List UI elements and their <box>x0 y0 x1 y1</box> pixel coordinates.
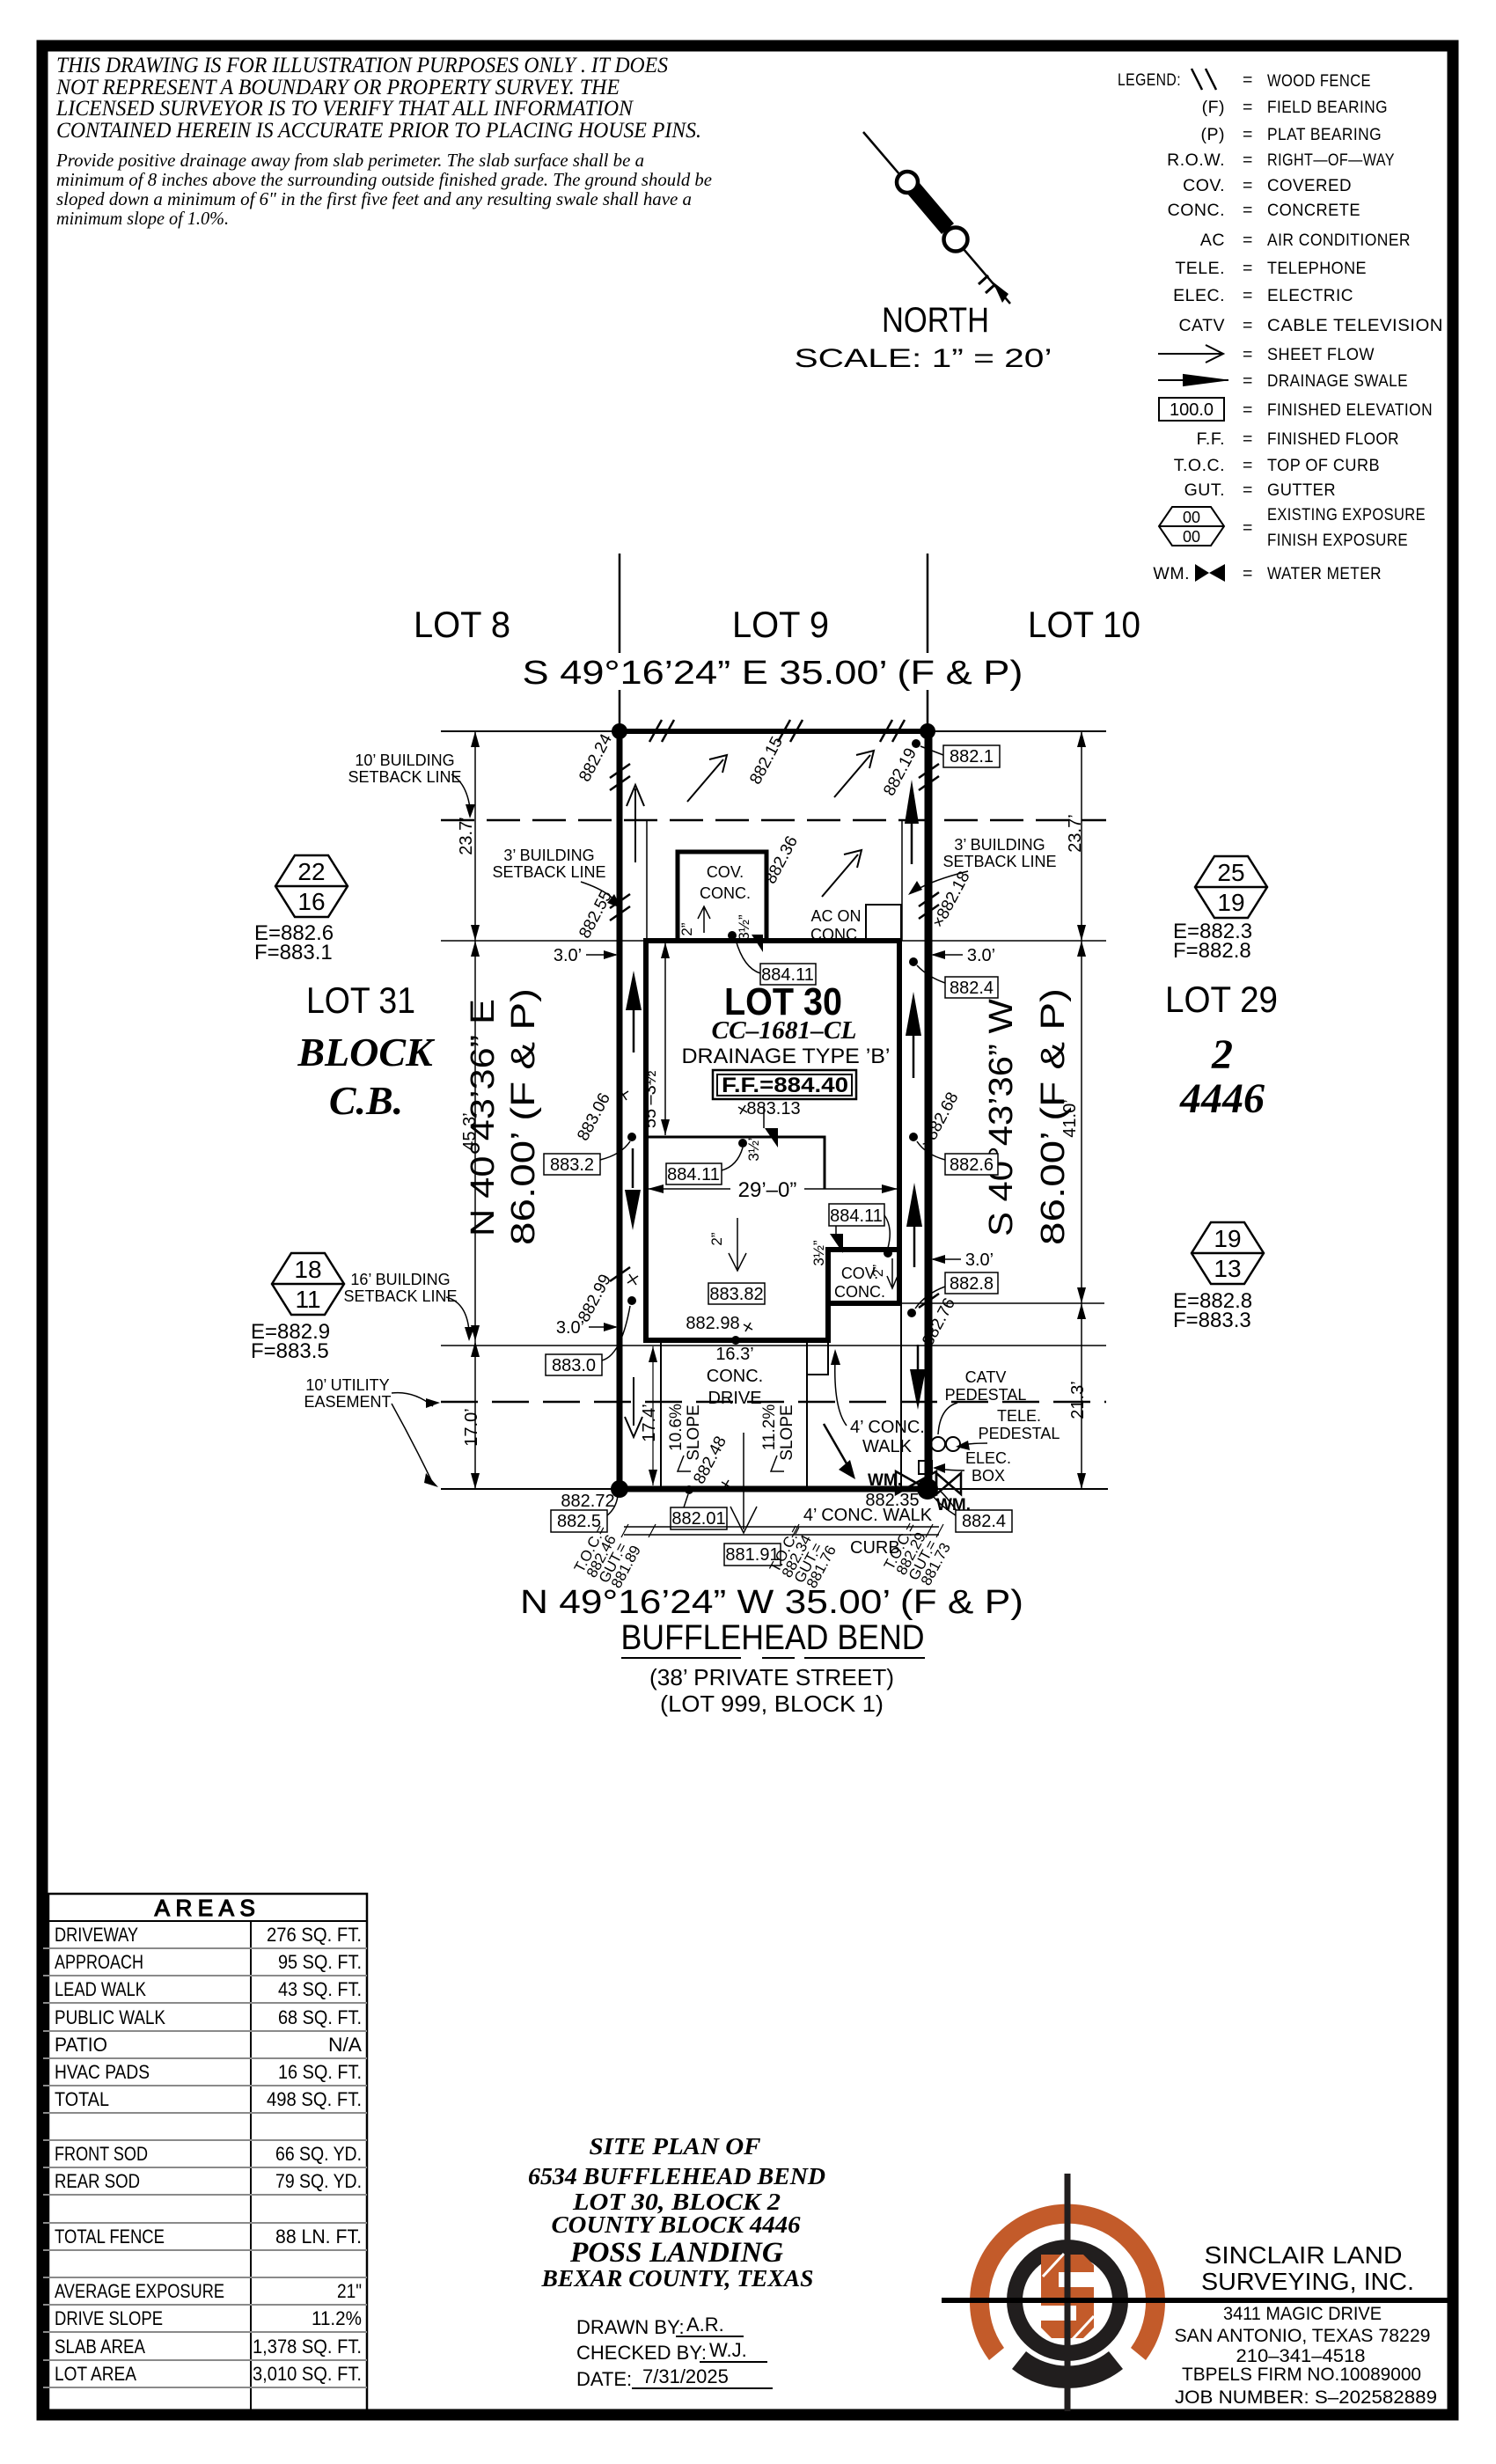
svg-text:(38’ PRIVATE STREET): (38’ PRIVATE STREET) <box>649 1664 894 1690</box>
svg-text:882.72: 882.72 <box>561 1492 614 1511</box>
svg-text:T.O.C.: T.O.C. <box>1174 456 1225 475</box>
svg-text:BOX: BOX <box>972 1467 1005 1485</box>
svg-text:884.11: 884.11 <box>667 1165 720 1184</box>
svg-text:EASEMENT: EASEMENT <box>304 1393 391 1411</box>
svg-text:FIELD BEARING: FIELD BEARING <box>1267 98 1388 117</box>
svg-text:F.F.: F.F. <box>1197 429 1225 449</box>
svg-text:TOTAL FENCE: TOTAL FENCE <box>55 2226 165 2248</box>
svg-text:1,378 SQ. FT.: 1,378 SQ. FT. <box>253 2336 362 2358</box>
svg-text:2: 2 <box>1211 1031 1233 1078</box>
svg-text:ELEC.: ELEC. <box>965 1449 1011 1467</box>
svg-text:GUTTER: GUTTER <box>1267 480 1336 500</box>
svg-text:PLAT BEARING: PLAT BEARING <box>1267 125 1382 144</box>
svg-text:CATV: CATV <box>1178 316 1225 335</box>
svg-text:=: = <box>1243 518 1253 538</box>
svg-text:25: 25 <box>1217 859 1244 886</box>
svg-text:210–341–4518: 210–341–4518 <box>1236 2346 1366 2366</box>
svg-text:=: = <box>1243 231 1253 250</box>
svg-text:WALK: WALK <box>862 1437 913 1456</box>
svg-text:66 SQ. YD.: 66 SQ. YD. <box>275 2143 362 2165</box>
svg-text:11: 11 <box>295 1286 320 1313</box>
svg-text:COV.: COV. <box>707 863 744 881</box>
svg-text:=: = <box>1243 98 1253 117</box>
svg-text:REAR SOD: REAR SOD <box>55 2170 140 2192</box>
svg-text:AC ON: AC ON <box>810 907 861 925</box>
svg-text:F=883.1: F=883.1 <box>254 941 333 964</box>
svg-text:21.3’: 21.3’ <box>1068 1381 1088 1419</box>
svg-text:55’–3½”: 55’–3½” <box>641 1065 660 1128</box>
svg-text:18: 18 <box>294 1256 321 1283</box>
svg-text:SLAB AREA: SLAB AREA <box>55 2336 145 2358</box>
svg-text:=: = <box>1243 564 1253 583</box>
svg-text:=: = <box>1243 176 1253 195</box>
svg-text:882.98: 882.98 <box>686 1314 739 1333</box>
svg-text:WATER METER: WATER METER <box>1267 564 1382 583</box>
svg-text:10’ UTILITY: 10’ UTILITY <box>305 1376 389 1394</box>
svg-text:882.8: 882.8 <box>950 1274 994 1294</box>
svg-text:10’ BUILDING: 10’ BUILDING <box>355 752 454 769</box>
svg-text:=: = <box>1243 70 1253 90</box>
svg-text:DATE:: DATE: <box>576 2368 632 2390</box>
svg-text:86.00’ (F & P): 86.00’ (F & P) <box>505 988 542 1245</box>
svg-text:CABLE TELEVISION: CABLE TELEVISION <box>1267 316 1443 335</box>
svg-text:S 49°16’24” E 35.00’ (F & P): S 49°16’24” E 35.00’ (F & P) <box>523 655 1023 692</box>
svg-text:00: 00 <box>1183 528 1200 546</box>
svg-text:(F): (F) <box>1202 98 1225 117</box>
svg-text:FRONT SOD: FRONT SOD <box>55 2143 148 2165</box>
svg-text:HVAC PADS: HVAC PADS <box>55 2061 150 2083</box>
svg-text:882.01: 882.01 <box>671 1509 725 1529</box>
svg-text:884.11: 884.11 <box>830 1206 883 1226</box>
svg-text:23.7’: 23.7’ <box>457 817 476 854</box>
svg-text:F=883.5: F=883.5 <box>251 1339 329 1363</box>
svg-text:=: = <box>1243 125 1253 144</box>
svg-text:19: 19 <box>1217 889 1244 916</box>
svg-text:LOT AREA: LOT AREA <box>55 2363 136 2385</box>
svg-text:882.1: 882.1 <box>950 747 994 766</box>
svg-text:13: 13 <box>1214 1255 1241 1282</box>
svg-text:16: 16 <box>297 888 325 915</box>
svg-text:COV.: COV. <box>1183 176 1225 195</box>
svg-text:=: = <box>1243 201 1253 220</box>
svg-text:SETBACK LINE: SETBACK LINE <box>348 768 461 786</box>
svg-text:3½”: 3½” <box>745 1135 762 1162</box>
svg-text:DRIVE SLOPE: DRIVE SLOPE <box>55 2307 163 2329</box>
svg-text:TELEPHONE: TELEPHONE <box>1267 259 1367 278</box>
svg-text:29’–0”: 29’–0” <box>738 1178 797 1202</box>
svg-text:100.0: 100.0 <box>1170 400 1214 420</box>
svg-text:LEAD WALK: LEAD WALK <box>55 1978 146 2000</box>
svg-text:TELE.: TELE. <box>1175 259 1225 278</box>
svg-text:EXISTING EXPOSURE: EXISTING EXPOSURE <box>1267 505 1426 524</box>
svg-text:LOT 9: LOT 9 <box>732 604 829 645</box>
svg-text:GUT.: GUT. <box>1184 480 1225 500</box>
svg-text:882.4: 882.4 <box>950 979 994 998</box>
svg-text:TBPELS FIRM NO.10089000: TBPELS FIRM NO.10089000 <box>1182 2365 1421 2385</box>
svg-text:68 SQ. FT.: 68 SQ. FT. <box>278 2006 362 2028</box>
svg-text:DRAINAGE SWALE: DRAINAGE SWALE <box>1267 371 1408 391</box>
svg-text:FINISH EXPOSURE: FINISH EXPOSURE <box>1267 531 1408 550</box>
svg-text:SAN ANTONIO, TEXAS 78229: SAN ANTONIO, TEXAS 78229 <box>1175 2326 1431 2346</box>
svg-text:276 SQ. FT.: 276 SQ. FT. <box>267 1924 362 1946</box>
svg-text:A.R.: A.R. <box>686 2314 724 2336</box>
svg-text:Provide positive drainage away: Provide positive drainage away from slab… <box>55 150 644 171</box>
svg-text:79 SQ. YD.: 79 SQ. YD. <box>275 2170 362 2192</box>
svg-text:DRIVE: DRIVE <box>708 1389 761 1408</box>
svg-text:APPROACH: APPROACH <box>55 1951 143 1973</box>
svg-text:W.J.: W.J. <box>709 2339 747 2361</box>
svg-text:SURVEYING, INC.: SURVEYING, INC. <box>1201 2268 1414 2295</box>
svg-text:CHECKED BY:: CHECKED BY: <box>576 2342 707 2364</box>
svg-text:SINCLAIR LAND: SINCLAIR LAND <box>1205 2241 1403 2269</box>
svg-text:498 SQ. FT.: 498 SQ. FT. <box>267 2088 362 2110</box>
svg-text:LICENSED SURVEYOR IS TO VERIFY: LICENSED SURVEYOR IS TO VERIFY THAT ALL … <box>55 97 634 121</box>
svg-text:=: = <box>1243 480 1253 500</box>
svg-text:(LOT 999, BLOCK 1): (LOT 999, BLOCK 1) <box>660 1690 884 1717</box>
svg-text:10.6%: 10.6% <box>667 1404 686 1451</box>
svg-text:CC–1681–CL: CC–1681–CL <box>712 1017 857 1045</box>
svg-text:NOT REPRESENT A BOUNDARY OR PR: NOT REPRESENT A BOUNDARY OR PROPERTY SUR… <box>55 76 620 99</box>
svg-text:884.11: 884.11 <box>761 965 814 985</box>
svg-text:TELE.: TELE. <box>997 1407 1041 1425</box>
svg-text:2”: 2” <box>708 1232 725 1245</box>
svg-text:SETBACK LINE: SETBACK LINE <box>492 863 605 881</box>
svg-text:FINISHED FLOOR: FINISHED FLOOR <box>1267 429 1399 449</box>
svg-text:=: = <box>1243 345 1253 364</box>
svg-text:=: = <box>1243 286 1253 305</box>
svg-text:00: 00 <box>1183 509 1200 526</box>
svg-text:SITE PLAN OF: SITE PLAN OF <box>590 2133 761 2160</box>
svg-text:S 40°43’36” W: S 40°43’36” W <box>983 999 1020 1236</box>
svg-text:883.2: 883.2 <box>550 1155 594 1175</box>
svg-text:19: 19 <box>1214 1225 1241 1252</box>
svg-text:CONC.: CONC. <box>810 926 862 943</box>
svg-text:N/A: N/A <box>328 2034 362 2056</box>
svg-text:CONC.: CONC. <box>707 1367 763 1386</box>
svg-text:PUBLIC WALK: PUBLIC WALK <box>55 2006 165 2028</box>
svg-text:LEGEND:: LEGEND: <box>1118 70 1181 90</box>
svg-text:JOB NUMBER: S–202582889: JOB NUMBER: S–202582889 <box>1175 2387 1437 2408</box>
svg-text:FINISHED ELEVATION: FINISHED ELEVATION <box>1267 400 1433 420</box>
svg-text:TOP OF CURB: TOP OF CURB <box>1267 456 1380 475</box>
svg-text:=: = <box>1243 259 1253 278</box>
svg-text:11.2%: 11.2% <box>760 1404 779 1451</box>
svg-text:SHEET FLOW: SHEET FLOW <box>1267 345 1375 364</box>
svg-text:86.00’ (F & P): 86.00’ (F & P) <box>1035 988 1072 1245</box>
svg-text:SETBACK LINE: SETBACK LINE <box>343 1287 457 1305</box>
svg-text:22: 22 <box>297 858 325 885</box>
svg-text:3411 MAGIC DRIVE: 3411 MAGIC DRIVE <box>1223 2304 1382 2324</box>
svg-text:BLOCK: BLOCK <box>297 1030 436 1074</box>
svg-text:3.0’: 3.0’ <box>554 946 582 965</box>
svg-text:RIGHT—OF—WAY: RIGHT—OF—WAY <box>1267 150 1395 170</box>
svg-text:3’ BUILDING: 3’ BUILDING <box>954 836 1045 854</box>
svg-text:F=883.3: F=883.3 <box>1173 1309 1251 1332</box>
svg-text:COVERED: COVERED <box>1267 176 1352 195</box>
svg-text:LOT 29: LOT 29 <box>1165 979 1278 1020</box>
svg-text:C.B.: C.B. <box>329 1078 403 1123</box>
svg-text:=: = <box>1243 316 1253 335</box>
svg-text:7/31/2025: 7/31/2025 <box>642 2365 729 2387</box>
svg-text:AC: AC <box>1200 231 1225 250</box>
svg-text:SETBACK LINE: SETBACK LINE <box>942 853 1056 870</box>
svg-text:11.2%: 11.2% <box>312 2307 362 2329</box>
svg-text:3½”: 3½” <box>736 914 752 941</box>
svg-text:SLOPE: SLOPE <box>685 1404 703 1460</box>
svg-text:AREAS: AREAS <box>155 1895 261 1921</box>
svg-text:4’ CONC.: 4’ CONC. <box>850 1418 925 1437</box>
svg-text:23.7’: 23.7’ <box>1066 814 1085 852</box>
svg-text:3,010 SQ. FT.: 3,010 SQ. FT. <box>253 2363 362 2385</box>
svg-text:SLOPE: SLOPE <box>778 1404 796 1460</box>
svg-text:R.O.W.: R.O.W. <box>1167 150 1225 170</box>
svg-text:882.6: 882.6 <box>950 1155 994 1175</box>
svg-text:PEDESTAL: PEDESTAL <box>945 1386 1027 1404</box>
svg-text:883.13: 883.13 <box>746 1099 800 1118</box>
svg-text:AVERAGE EXPOSURE: AVERAGE EXPOSURE <box>55 2280 224 2302</box>
svg-text:ELECTRIC: ELECTRIC <box>1267 286 1353 305</box>
svg-text:THIS DRAWING IS FOR ILLUSTRATI: THIS DRAWING IS FOR ILLUSTRATION PURPOSE… <box>56 54 668 77</box>
svg-text:=: = <box>1243 429 1253 449</box>
svg-text:(P): (P) <box>1201 125 1226 144</box>
svg-text:=: = <box>1243 150 1253 170</box>
svg-text:PEDESTAL: PEDESTAL <box>979 1425 1060 1442</box>
svg-text:LOT 10: LOT 10 <box>1028 604 1140 645</box>
svg-text:883.82: 883.82 <box>709 1285 763 1304</box>
svg-text:ELEC.: ELEC. <box>1173 286 1225 305</box>
svg-text:88 LN. FT.: 88 LN. FT. <box>275 2226 362 2248</box>
svg-text:minimum of 8 inches above the: minimum of 8 inches above the surroundin… <box>56 169 712 190</box>
svg-text:DRIVEWAY: DRIVEWAY <box>55 1924 138 1946</box>
svg-text:F.F.=884.40: F.F.=884.40 <box>722 1074 848 1097</box>
svg-text:POSS LANDING: POSS LANDING <box>569 2237 783 2269</box>
svg-text:minimum slope of 1.0%.: minimum slope of 1.0%. <box>56 208 229 229</box>
svg-text:16 SQ. FT.: 16 SQ. FT. <box>278 2061 362 2083</box>
svg-text:43 SQ. FT.: 43 SQ. FT. <box>278 1978 362 2000</box>
svg-text:CONCRETE: CONCRETE <box>1267 201 1360 220</box>
svg-text:3.0’: 3.0’ <box>556 1318 584 1338</box>
svg-text:=: = <box>1243 400 1253 420</box>
svg-text:NORTH: NORTH <box>882 301 989 340</box>
svg-text:3½”: 3½” <box>810 1240 827 1266</box>
svg-text:2”: 2” <box>678 922 695 935</box>
svg-text:LOT 31: LOT 31 <box>306 979 415 1021</box>
svg-text:21": 21" <box>337 2280 362 2302</box>
svg-text:COUNTY BLOCK 4446: COUNTY BLOCK 4446 <box>552 2211 802 2238</box>
svg-text:PATIO: PATIO <box>55 2034 107 2056</box>
svg-text:BEXAR COUNTY, TEXAS: BEXAR COUNTY, TEXAS <box>540 2265 813 2292</box>
svg-text:17.4’: 17.4’ <box>640 1404 659 1441</box>
svg-text:CATV: CATV <box>965 1368 1007 1386</box>
svg-text:CONC.: CONC. <box>834 1283 885 1301</box>
svg-text:LOT 8: LOT 8 <box>414 604 510 645</box>
svg-text:3’ BUILDING: 3’ BUILDING <box>503 847 594 864</box>
svg-text:CONC.: CONC. <box>1168 201 1225 220</box>
svg-text:6534 BUFFLEHEAD BEND: 6534 BUFFLEHEAD BEND <box>528 2163 825 2189</box>
svg-text:95 SQ. FT.: 95 SQ. FT. <box>278 1951 362 1973</box>
svg-text:=: = <box>1243 371 1253 391</box>
svg-text:4446: 4446 <box>1179 1075 1265 1122</box>
svg-text:DRAWN BY:: DRAWN BY: <box>576 2316 685 2338</box>
svg-text:WM.: WM. <box>1153 564 1190 583</box>
svg-text:CONC.: CONC. <box>700 884 751 902</box>
svg-text:=: = <box>1243 456 1253 475</box>
svg-text:883.0: 883.0 <box>552 1356 596 1375</box>
svg-text:F=882.8: F=882.8 <box>1173 939 1251 963</box>
svg-text:3.0’: 3.0’ <box>967 946 995 965</box>
svg-text:4’ CONC. WALK: 4’ CONC. WALK <box>803 1506 933 1525</box>
svg-text:SCALE: 1” = 20’: SCALE: 1” = 20’ <box>795 344 1052 373</box>
svg-text:TOTAL: TOTAL <box>55 2088 109 2110</box>
svg-text:sloped down a minimum of 6" in: sloped down a minimum of 6" in the first… <box>56 188 692 209</box>
svg-text:WOOD FENCE: WOOD FENCE <box>1267 71 1371 91</box>
svg-text:16.3’: 16.3’ <box>715 1345 753 1364</box>
svg-text:3.0’: 3.0’ <box>965 1250 994 1270</box>
svg-text:16’ BUILDING: 16’ BUILDING <box>350 1271 450 1288</box>
svg-text:BUFFLEHEAD BEND: BUFFLEHEAD BEND <box>621 1618 925 1657</box>
svg-text:N 49°16’24” W 35.00’ (F & P): N 49°16’24” W 35.00’ (F & P) <box>520 1584 1023 1621</box>
svg-text:882.4: 882.4 <box>962 1512 1006 1531</box>
svg-text:N 40°43’36” E: N 40°43’36” E <box>465 999 502 1236</box>
svg-text:AIR CONDITIONER: AIR CONDITIONER <box>1267 231 1411 250</box>
svg-text:CONTAINED HEREIN IS ACCURATE P: CONTAINED HEREIN IS ACCURATE PRIOR TO PL… <box>56 119 701 143</box>
svg-text:2”: 2” <box>871 1265 886 1277</box>
svg-text:17.0’: 17.0’ <box>462 1408 481 1446</box>
svg-text:DRAINAGE TYPE ’B’: DRAINAGE TYPE ’B’ <box>682 1045 891 1068</box>
